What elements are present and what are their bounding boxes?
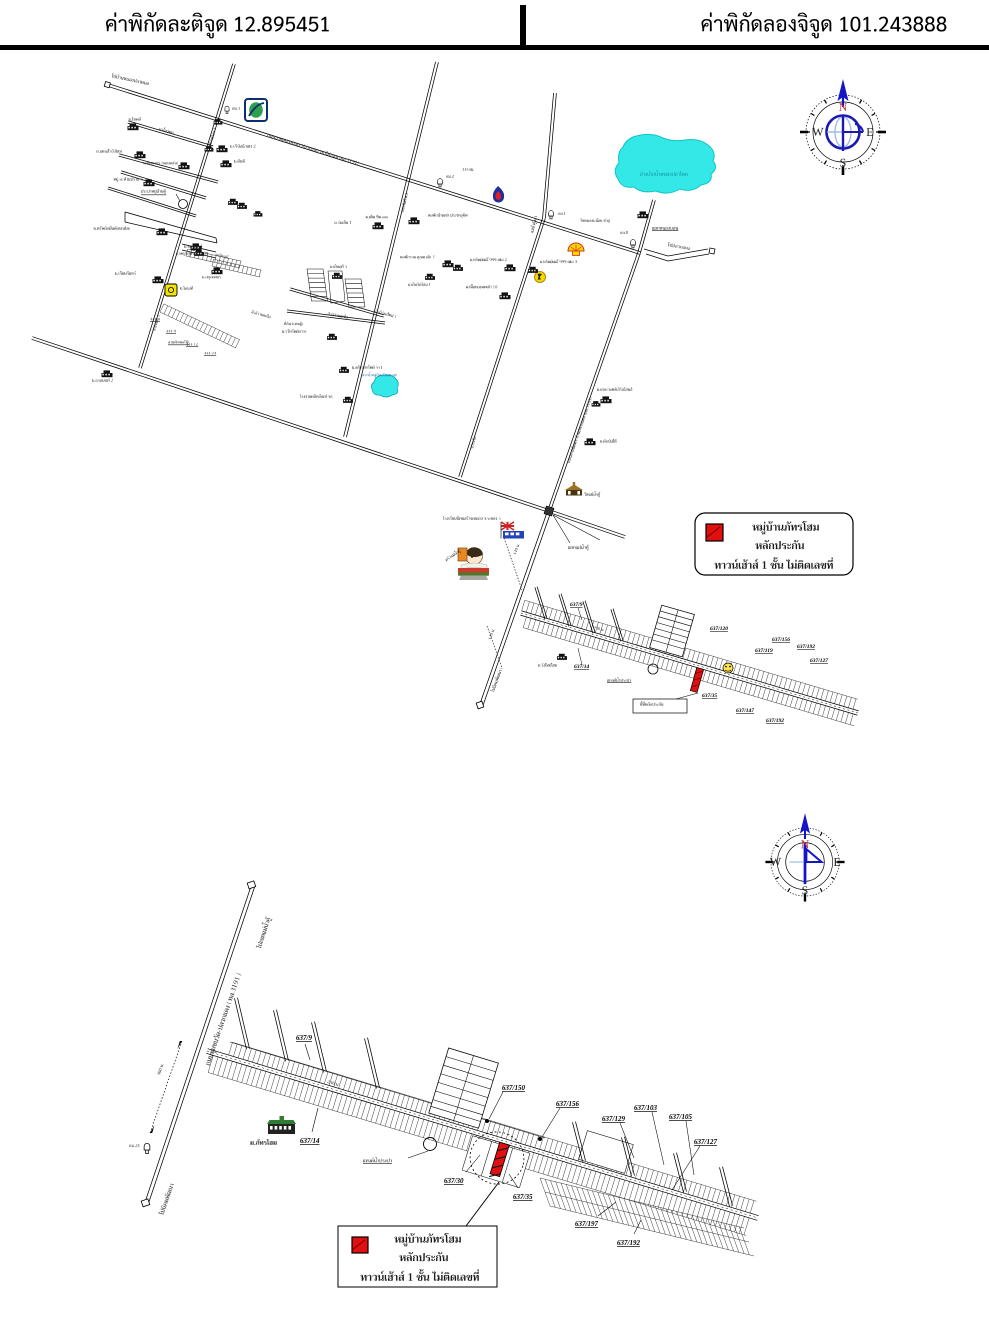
- svg-text:637/14: 637/14: [300, 1137, 320, 1145]
- svg-text:637/127: 637/127: [810, 658, 828, 664]
- svg-text:637/35: 637/35: [513, 1193, 533, 1201]
- svg-text:637/9: 637/9: [296, 1034, 312, 1042]
- svg-text:637/129: 637/129: [602, 1115, 625, 1123]
- svg-text:637/156: 637/156: [556, 1100, 579, 1108]
- svg-text:637/150: 637/150: [502, 1084, 525, 1092]
- svg-text:637/147: 637/147: [736, 708, 754, 714]
- svg-text:637/120: 637/120: [710, 626, 728, 632]
- svg-text:637/192: 637/192: [617, 1239, 640, 1247]
- svg-text:637/192: 637/192: [766, 718, 784, 724]
- svg-text:637/197: 637/197: [575, 1220, 598, 1228]
- svg-text:637/127: 637/127: [694, 1138, 717, 1146]
- svg-text:637/35: 637/35: [702, 693, 718, 699]
- svg-text:637/9: 637/9: [570, 602, 583, 608]
- svg-text:637/30: 637/30: [444, 1177, 464, 1185]
- svg-text:637/119: 637/119: [755, 648, 773, 654]
- svg-text:637/103: 637/103: [634, 1104, 657, 1112]
- svg-text:637/192: 637/192: [797, 644, 815, 650]
- svg-text:637/105: 637/105: [669, 1113, 692, 1121]
- svg-text:637/156: 637/156: [772, 637, 790, 643]
